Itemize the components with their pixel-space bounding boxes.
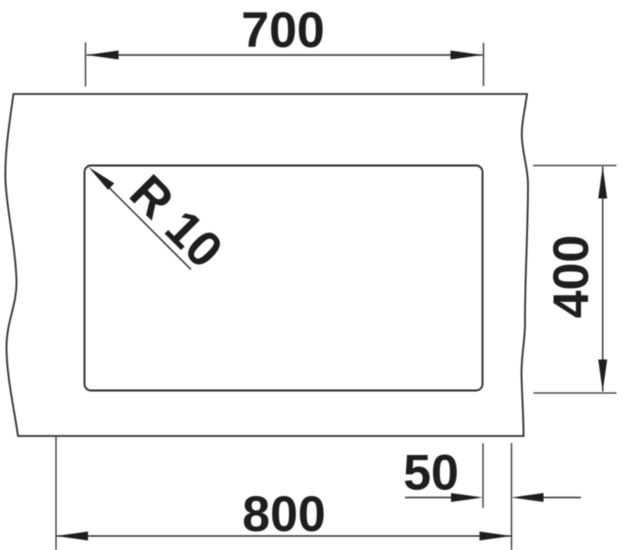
svg-text:700: 700 xyxy=(241,2,324,58)
svg-text:R 10: R 10 xyxy=(119,164,233,278)
svg-text:400: 400 xyxy=(543,235,599,318)
svg-text:50: 50 xyxy=(403,445,459,501)
svg-text:800: 800 xyxy=(242,486,325,542)
